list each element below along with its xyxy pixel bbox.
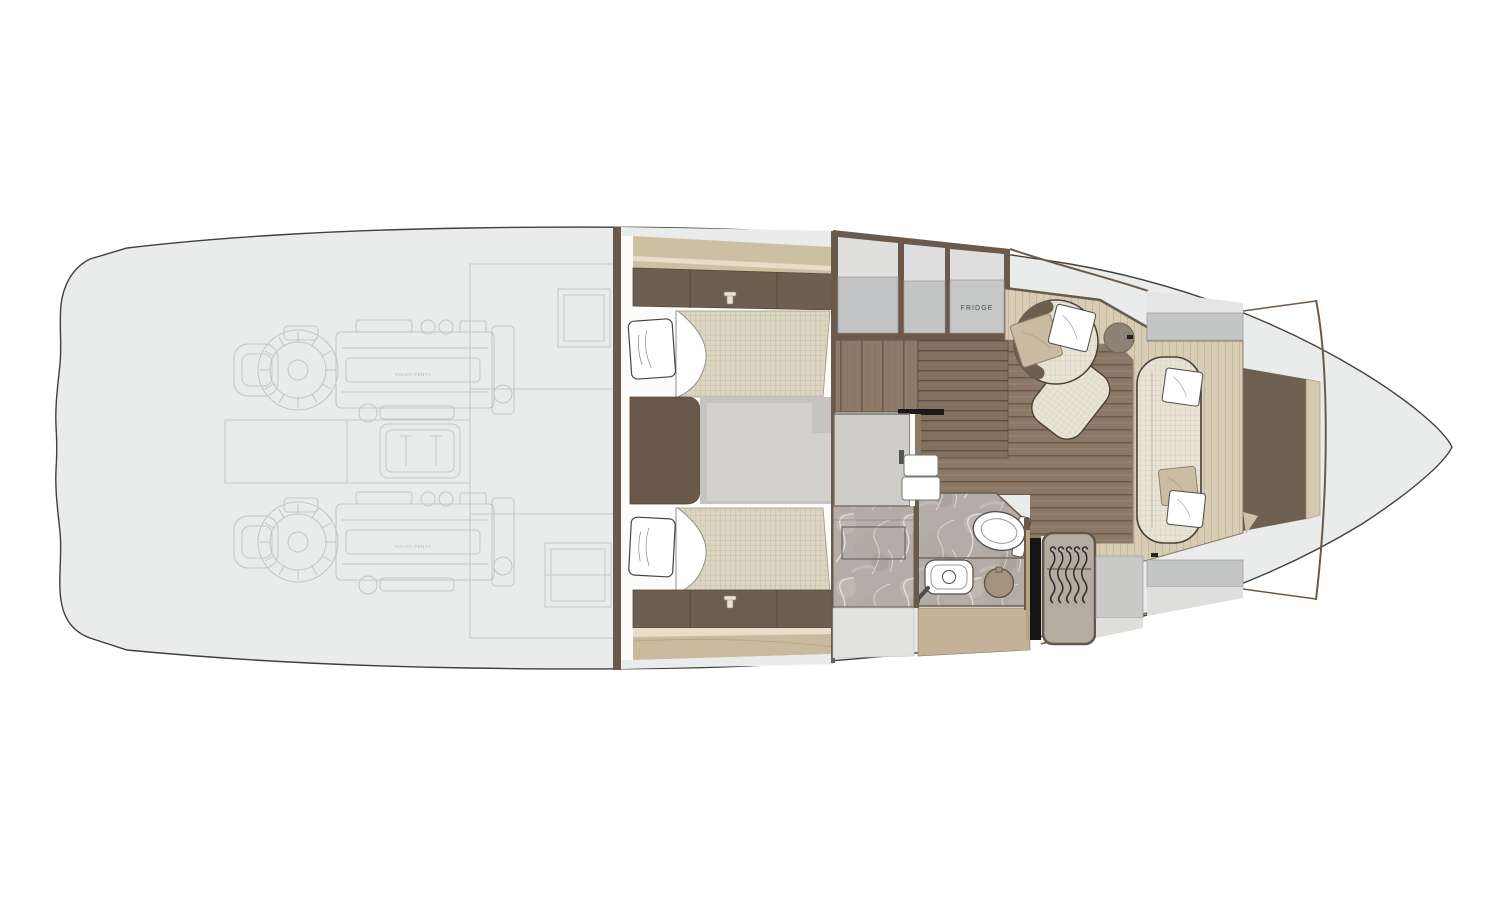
bow-panel-trim [1306,379,1320,519]
galley-unit-1 [838,237,898,333]
black-trim [1030,538,1041,640]
staircase [918,340,1008,458]
bathroom-left-wall [914,493,919,608]
berth-bottom [629,506,831,593]
side-panel-top-light [1147,291,1243,313]
fridge-label: FRIDGE [960,305,993,312]
nightstand-step [630,397,700,504]
locker-side-trim [1026,530,1030,640]
bow-wall-bottom [1243,589,1316,599]
vanity-front [918,608,1030,656]
wardrobe-cabinet-bank [835,340,918,412]
port-engine-label: VOLVO PENTA [395,372,432,377]
galley-unit-2 [904,244,945,333]
bow-panel [1243,368,1306,531]
door-handle [899,450,904,464]
overhead-cabinet-top [633,268,833,310]
starboard-engine-label: VOLVO PENTA [395,544,432,549]
berth-top [628,310,831,398]
yacht-floorplan-canvas: VOLVO PENTA VOLVO PENTA [0,0,1500,900]
side-panel-bottom-light [1147,587,1243,616]
shower [833,502,918,658]
aft-salon-cabinets [1096,556,1143,638]
hanging-locker [1043,533,1095,644]
pillow-bottom [629,517,676,577]
bathroom [913,493,1032,656]
sofa-pillow-1 [1162,368,1203,407]
latch-mark-bottom [1151,553,1158,557]
fridge-unit: FRIDGE [950,249,1004,333]
side-panel-bottom [1147,560,1243,587]
sofa [1137,357,1206,543]
entry-steps [902,455,940,500]
pillow-top [628,319,676,380]
sofa-pillow-3 [1166,490,1205,528]
cabin-rug-notch [812,403,833,433]
shower-front [833,608,914,658]
side-panel-top [1147,313,1243,340]
bulkhead-wall [613,227,621,670]
lower-deck-plan: VOLVO PENTA VOLVO PENTA [0,0,1500,900]
guest-cabin [621,227,835,669]
overhead-cabinet-bottom [633,590,833,628]
bow-wall-top [1243,301,1316,311]
galley: FRIDGE [833,230,1010,340]
latch-mark-top [1127,335,1133,339]
